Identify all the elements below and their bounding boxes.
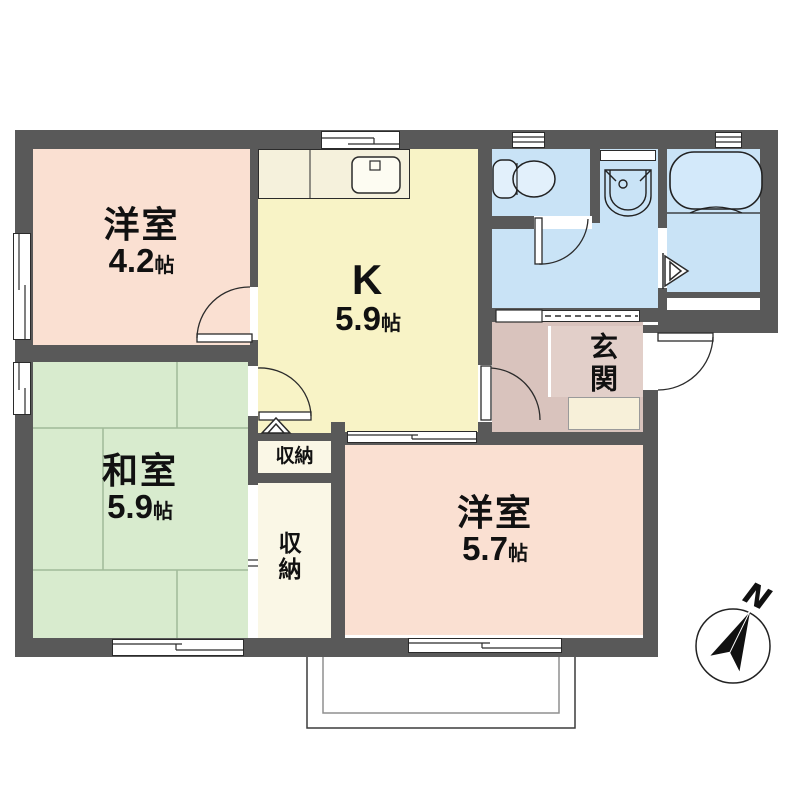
opening-west1-door [250,287,258,340]
window-japanese-bottom [112,639,244,656]
window-bath-top [715,132,742,148]
porch-outline [307,657,575,728]
wall-toilet-basin [590,149,600,223]
opening-japanese-door [248,366,258,416]
kitchen-counter [258,149,410,199]
window-kitchen-top [321,131,400,149]
label-kitchen-size: 5.9帖 [288,302,448,337]
label-kitchen: K 5.9帖 [288,258,448,337]
label-western2-name: 洋室 [403,494,587,532]
north-arrow-icon: N [696,574,780,683]
label-western2-size: 5.7帖 [403,532,587,567]
opening-toilet-door [534,216,592,229]
label-japanese-name: 和室 [50,452,230,490]
label-closet-lower: 収納 [271,531,305,583]
label-kitchen-name: K [288,258,448,302]
label-western1-name: 洋室 [50,206,233,244]
window-west2-bottom [408,638,562,653]
bath-vent-window [667,298,760,310]
label-entrance: 玄関 [582,332,622,396]
entrance-step [568,397,640,430]
wall-closet-right [331,422,345,657]
label-closet-upper: 収納 [258,447,331,467]
floorplan-canvas: N 洋室 4.2帖 K 5.9帖 和室 5.9帖 洋室 5.7帖 玄関 収納 収… [0,0,800,800]
room-washroom [492,216,658,308]
opening-kitchen-hall-door [478,365,492,422]
opening-front-door [643,333,658,390]
label-japanese: 和室 5.9帖 [50,452,230,524]
label-western1: 洋室 4.2帖 [50,206,233,278]
room-bath [667,149,760,292]
sliding-door-kitchen-west2 [347,431,477,443]
label-japanese-size: 5.9帖 [50,490,230,525]
label-western2: 洋室 5.7帖 [403,494,587,566]
label-western1-size: 4.2帖 [50,244,233,279]
washbasin-shelf [600,150,656,161]
compass-north-label: N [738,576,776,618]
window-japanese-left [13,362,31,415]
opening-japanese-closet [248,485,258,638]
window-west1-left [13,233,31,340]
window-toilet-top [512,132,545,148]
room-toilet [492,149,590,216]
opening-bath-folddoor [658,228,667,288]
sliding-door-wash-entrance [496,310,640,322]
wall-w2-west1-japanese [15,345,258,362]
